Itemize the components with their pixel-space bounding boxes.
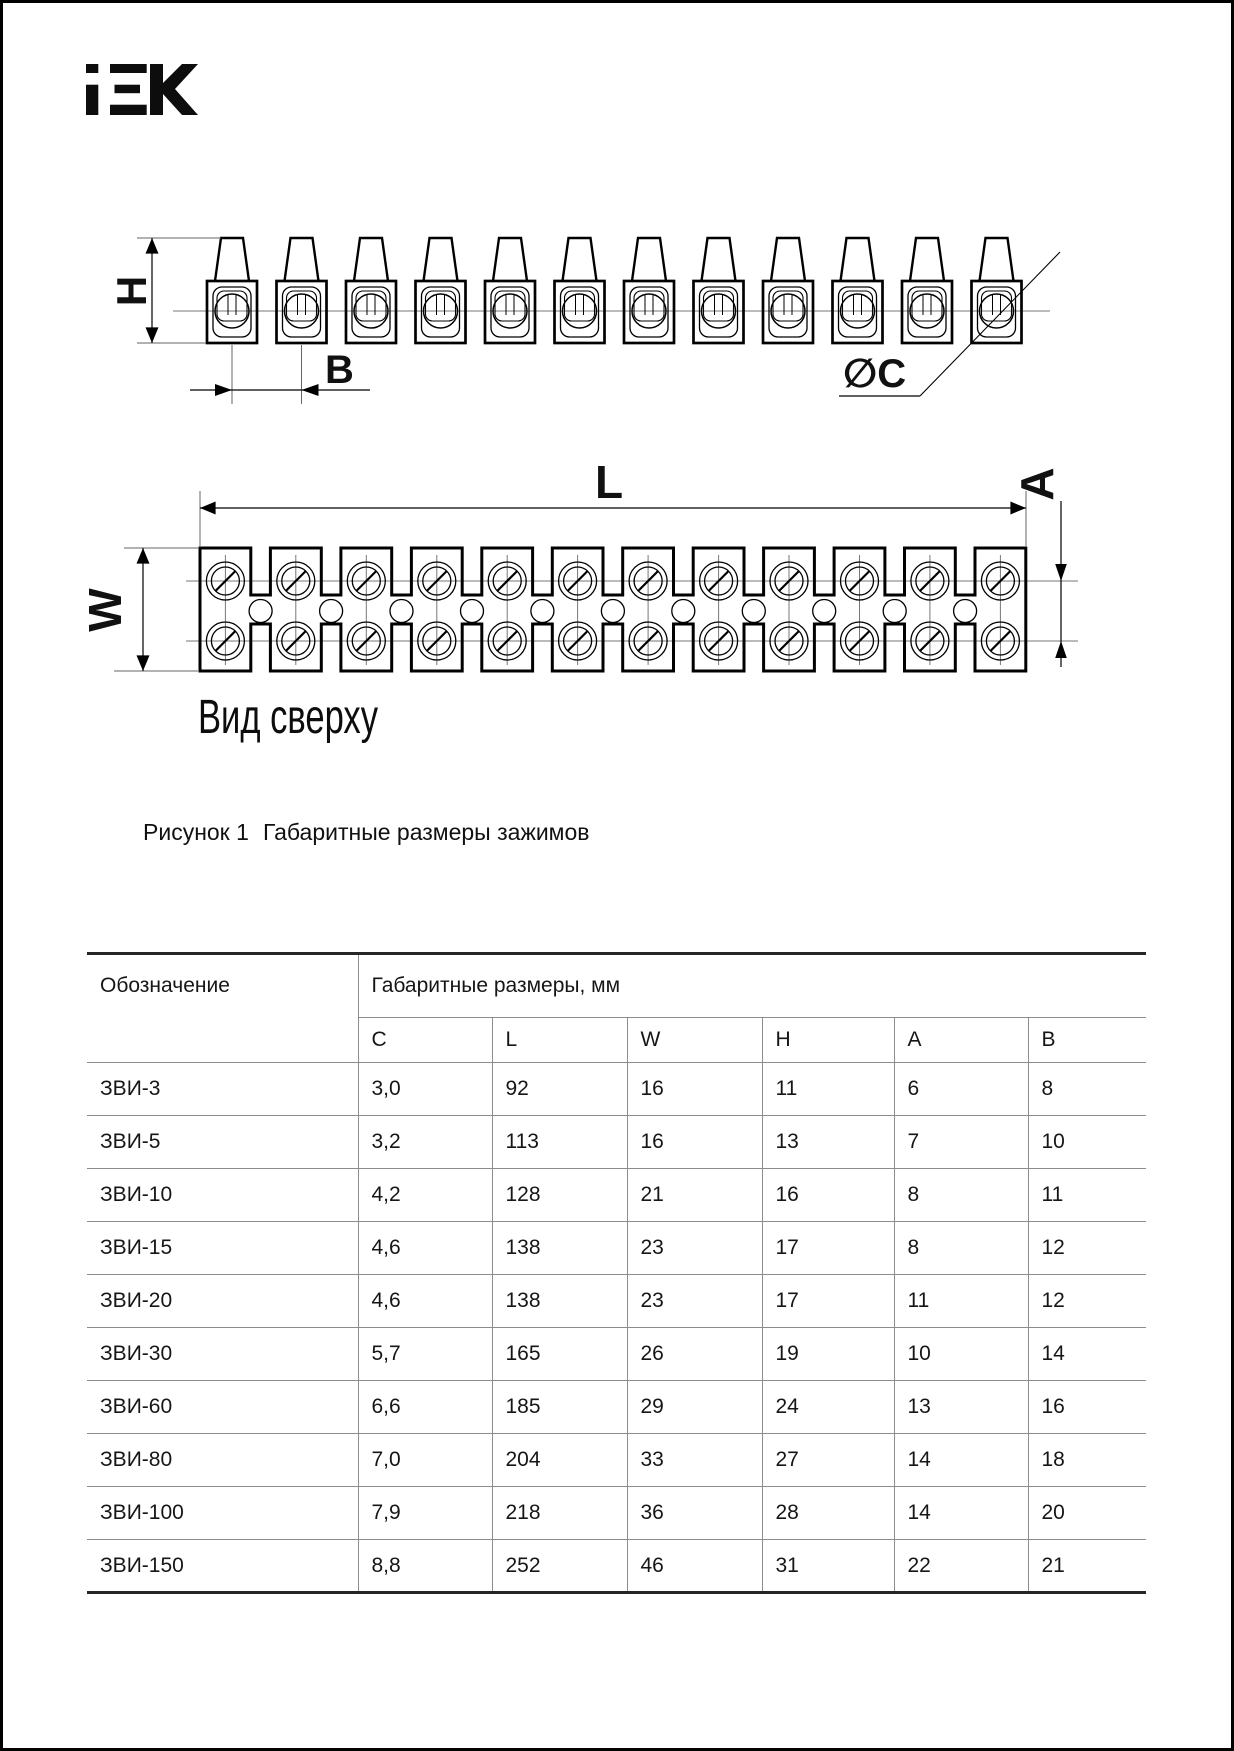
terminal-cell-side	[833, 238, 883, 343]
cell-dimension-value: 4,6	[358, 1222, 492, 1275]
terminal-cell-top	[559, 555, 597, 665]
cell-dimension-value: 29	[627, 1381, 762, 1434]
terminal-cell-side	[555, 238, 605, 343]
terminal-cell-side	[207, 238, 257, 343]
cell-dimension-value: 23	[627, 1275, 762, 1328]
wire-funnel	[563, 238, 597, 281]
cell-dimension-value: 6,6	[358, 1381, 492, 1434]
cell-dimension-value: 19	[762, 1328, 894, 1381]
table-row: ЗВИ-33,092161168	[87, 1063, 1146, 1116]
top-view-cells	[206, 555, 1019, 665]
cell-dimension-value: 4,2	[358, 1169, 492, 1222]
mounting-hole	[672, 600, 695, 623]
c-leader-line	[920, 252, 1060, 396]
column-header-b: B	[1028, 1018, 1146, 1063]
cell-designation: ЗВИ-80	[87, 1434, 358, 1487]
mounting-hole	[954, 600, 977, 623]
terminal-cell-top	[418, 555, 456, 665]
cell-dimension-value: 252	[492, 1540, 627, 1593]
cell-designation: ЗВИ-60	[87, 1381, 358, 1434]
cell-dimension-value: 13	[894, 1381, 1028, 1434]
cell-dimension-value: 3,2	[358, 1116, 492, 1169]
cell-dimension-value: 138	[492, 1275, 627, 1328]
screw-head-outline	[426, 291, 456, 321]
cell-dimension-value: 16	[762, 1169, 894, 1222]
column-header-c: C	[358, 1018, 492, 1063]
terminal-cell-side	[277, 238, 327, 343]
cell-dimension-value: 26	[627, 1328, 762, 1381]
cell-dimension-value: 8,8	[358, 1540, 492, 1593]
cell-dimension-value: 128	[492, 1169, 627, 1222]
cell-dimension-value: 6	[894, 1063, 1028, 1116]
cell-dimension-value: 138	[492, 1222, 627, 1275]
terminal-cell-top	[488, 555, 526, 665]
terminal-cell-side	[902, 238, 952, 343]
wire-funnel	[771, 238, 805, 281]
column-header-dimensions-group: Габаритные размеры, мм	[358, 954, 1146, 1018]
cell-dimension-value: 17	[762, 1222, 894, 1275]
cell-dimension-value: 204	[492, 1434, 627, 1487]
table-row: ЗВИ-1007,921836281420	[87, 1487, 1146, 1540]
mounting-hole	[320, 600, 343, 623]
cell-dimension-value: 7,9	[358, 1487, 492, 1540]
terminal-cell-top	[206, 555, 244, 665]
cell-dimension-value: 31	[762, 1540, 894, 1593]
mounting-hole	[531, 600, 554, 623]
top-view-label: Вид сверху	[198, 693, 378, 743]
cell-dimension-value: 4,6	[358, 1275, 492, 1328]
cell-designation: ЗВИ-3	[87, 1063, 358, 1116]
wire-funnel	[980, 238, 1014, 281]
cell-dimension-value: 46	[627, 1540, 762, 1593]
top-view-outline	[200, 548, 1026, 671]
wire-funnel	[632, 238, 666, 281]
cell-dimension-value: 16	[1028, 1381, 1146, 1434]
terminal-cell-top	[277, 555, 315, 665]
cell-dimension-value: 16	[627, 1063, 762, 1116]
table-row: ЗВИ-305,716526191014	[87, 1328, 1146, 1381]
cell-dimension-value: 28	[762, 1487, 894, 1540]
cell-dimension-value: 33	[627, 1434, 762, 1487]
cell-designation: ЗВИ-5	[87, 1116, 358, 1169]
cell-dimension-value: 11	[894, 1275, 1028, 1328]
screw-head-outline	[287, 291, 317, 321]
wire-funnel	[702, 238, 736, 281]
figure-1-drawing: H B ∅C L W A	[3, 3, 1234, 793]
cell-dimension-value: 13	[762, 1116, 894, 1169]
figure-caption: Рисунок 1Габаритные размеры зажимов	[143, 819, 590, 846]
dimensions-table: Обозначение Габаритные размеры, мм C L W…	[87, 952, 1146, 1594]
terminal-cell-top	[841, 555, 879, 665]
cell-designation: ЗВИ-30	[87, 1328, 358, 1381]
terminal-cell-top	[700, 555, 738, 665]
cell-dimension-value: 8	[894, 1222, 1028, 1275]
cell-dimension-value: 21	[627, 1169, 762, 1222]
cell-designation: ЗВИ-100	[87, 1487, 358, 1540]
terminal-cell-top	[629, 555, 667, 665]
cell-dimension-value: 7,0	[358, 1434, 492, 1487]
wire-funnel	[424, 238, 458, 281]
mounting-hole	[813, 600, 836, 623]
column-header-designation: Обозначение	[87, 954, 358, 1063]
dim-label-a: A	[1011, 467, 1063, 500]
screw-head-outline	[217, 291, 247, 321]
table-row: ЗВИ-807,020433271418	[87, 1434, 1146, 1487]
wire-funnel	[841, 238, 875, 281]
cell-dimension-value: 8	[1028, 1063, 1146, 1116]
terminal-cell-side	[694, 238, 744, 343]
dim-label-w: W	[79, 588, 131, 632]
cell-dimension-value: 16	[627, 1116, 762, 1169]
wire-funnel	[354, 238, 388, 281]
figure-caption-number: Рисунок 1	[143, 819, 249, 845]
dim-label-b: B	[325, 348, 354, 392]
terminal-cell-top	[911, 555, 949, 665]
cell-dimension-value: 10	[894, 1328, 1028, 1381]
a-arrowhead-bottom	[1055, 641, 1067, 658]
mounting-hole	[249, 600, 272, 623]
table-row: ЗВИ-53,21131613710	[87, 1116, 1146, 1169]
screw-head-outline	[704, 291, 734, 321]
cell-designation: ЗВИ-10	[87, 1169, 358, 1222]
cell-designation: ЗВИ-15	[87, 1222, 358, 1275]
cell-dimension-value: 24	[762, 1381, 894, 1434]
cell-dimension-value: 23	[627, 1222, 762, 1275]
cell-dimension-value: 165	[492, 1328, 627, 1381]
wire-funnel	[493, 238, 527, 281]
cell-dimension-value: 12	[1028, 1222, 1146, 1275]
mounting-hole	[742, 600, 765, 623]
terminal-cell-side	[763, 238, 813, 343]
terminal-cell-top	[347, 555, 385, 665]
terminal-cell-side	[624, 238, 674, 343]
screw-head-outline	[356, 291, 386, 321]
cell-dimension-value: 10	[1028, 1116, 1146, 1169]
column-header-a: A	[894, 1018, 1028, 1063]
cell-dimension-value: 14	[1028, 1328, 1146, 1381]
cell-dimension-value: 21	[1028, 1540, 1146, 1593]
cell-dimension-value: 14	[894, 1487, 1028, 1540]
cell-dimension-value: 3,0	[358, 1063, 492, 1116]
cell-dimension-value: 8	[894, 1169, 1028, 1222]
column-header-w: W	[627, 1018, 762, 1063]
dim-label-diameter-c: ∅C	[843, 352, 906, 396]
document-page: H B ∅C L W A Вид сверху Рисуно	[0, 0, 1234, 1751]
table-row: ЗВИ-104,21282116811	[87, 1169, 1146, 1222]
mounting-hole	[601, 600, 624, 623]
terminal-cell-side	[416, 238, 466, 343]
cell-dimension-value: 7	[894, 1116, 1028, 1169]
cell-dimension-value: 14	[894, 1434, 1028, 1487]
cell-dimension-value: 185	[492, 1381, 627, 1434]
screw-head-outline	[634, 291, 664, 321]
table-header-row-group: Обозначение Габаритные размеры, мм	[87, 954, 1146, 1018]
screw-head-outline	[912, 291, 942, 321]
screw-head-outline	[843, 291, 873, 321]
side-view-cells	[207, 238, 1022, 343]
a-arrowhead-top	[1055, 564, 1067, 581]
cell-designation: ЗВИ-20	[87, 1275, 358, 1328]
wire-funnel	[910, 238, 944, 281]
cell-dimension-value: 11	[1028, 1169, 1146, 1222]
cell-dimension-value: 11	[762, 1063, 894, 1116]
cell-dimension-value: 22	[894, 1540, 1028, 1593]
dim-label-h: H	[108, 276, 155, 306]
cell-dimension-value: 218	[492, 1487, 627, 1540]
cell-dimension-value: 12	[1028, 1275, 1146, 1328]
terminal-cell-top	[770, 555, 808, 665]
cell-dimension-value: 18	[1028, 1434, 1146, 1487]
table-row: ЗВИ-1508,825246312221	[87, 1540, 1146, 1593]
mounting-hole	[883, 600, 906, 623]
figure-caption-text: Габаритные размеры зажимов	[263, 819, 590, 845]
cell-dimension-value: 27	[762, 1434, 894, 1487]
cell-dimension-value: 17	[762, 1275, 894, 1328]
table-row: ЗВИ-606,618529241316	[87, 1381, 1146, 1434]
terminal-cell-side	[485, 238, 535, 343]
cell-dimension-value: 113	[492, 1116, 627, 1169]
column-header-h: H	[762, 1018, 894, 1063]
cell-dimension-value: 36	[627, 1487, 762, 1540]
dim-label-l: L	[595, 456, 623, 508]
screw-head-outline	[495, 291, 525, 321]
b-arrowhead-right	[302, 384, 319, 396]
terminal-cell-side	[972, 238, 1022, 343]
screw-head-outline	[773, 291, 803, 321]
mounting-hole	[461, 600, 484, 623]
cell-dimension-value: 5,7	[358, 1328, 492, 1381]
cell-dimension-value: 92	[492, 1063, 627, 1116]
cell-dimension-value: 20	[1028, 1487, 1146, 1540]
column-header-l: L	[492, 1018, 627, 1063]
wire-funnel	[285, 238, 319, 281]
b-arrowhead-left	[215, 384, 232, 396]
table-row: ЗВИ-204,613823171112	[87, 1275, 1146, 1328]
terminal-cell-side	[346, 238, 396, 343]
table-row: ЗВИ-154,61382317812	[87, 1222, 1146, 1275]
wire-funnel	[215, 238, 249, 281]
terminal-cell-top	[981, 555, 1019, 665]
screw-head-outline	[565, 291, 595, 321]
cell-designation: ЗВИ-150	[87, 1540, 358, 1593]
mounting-hole	[390, 600, 413, 623]
